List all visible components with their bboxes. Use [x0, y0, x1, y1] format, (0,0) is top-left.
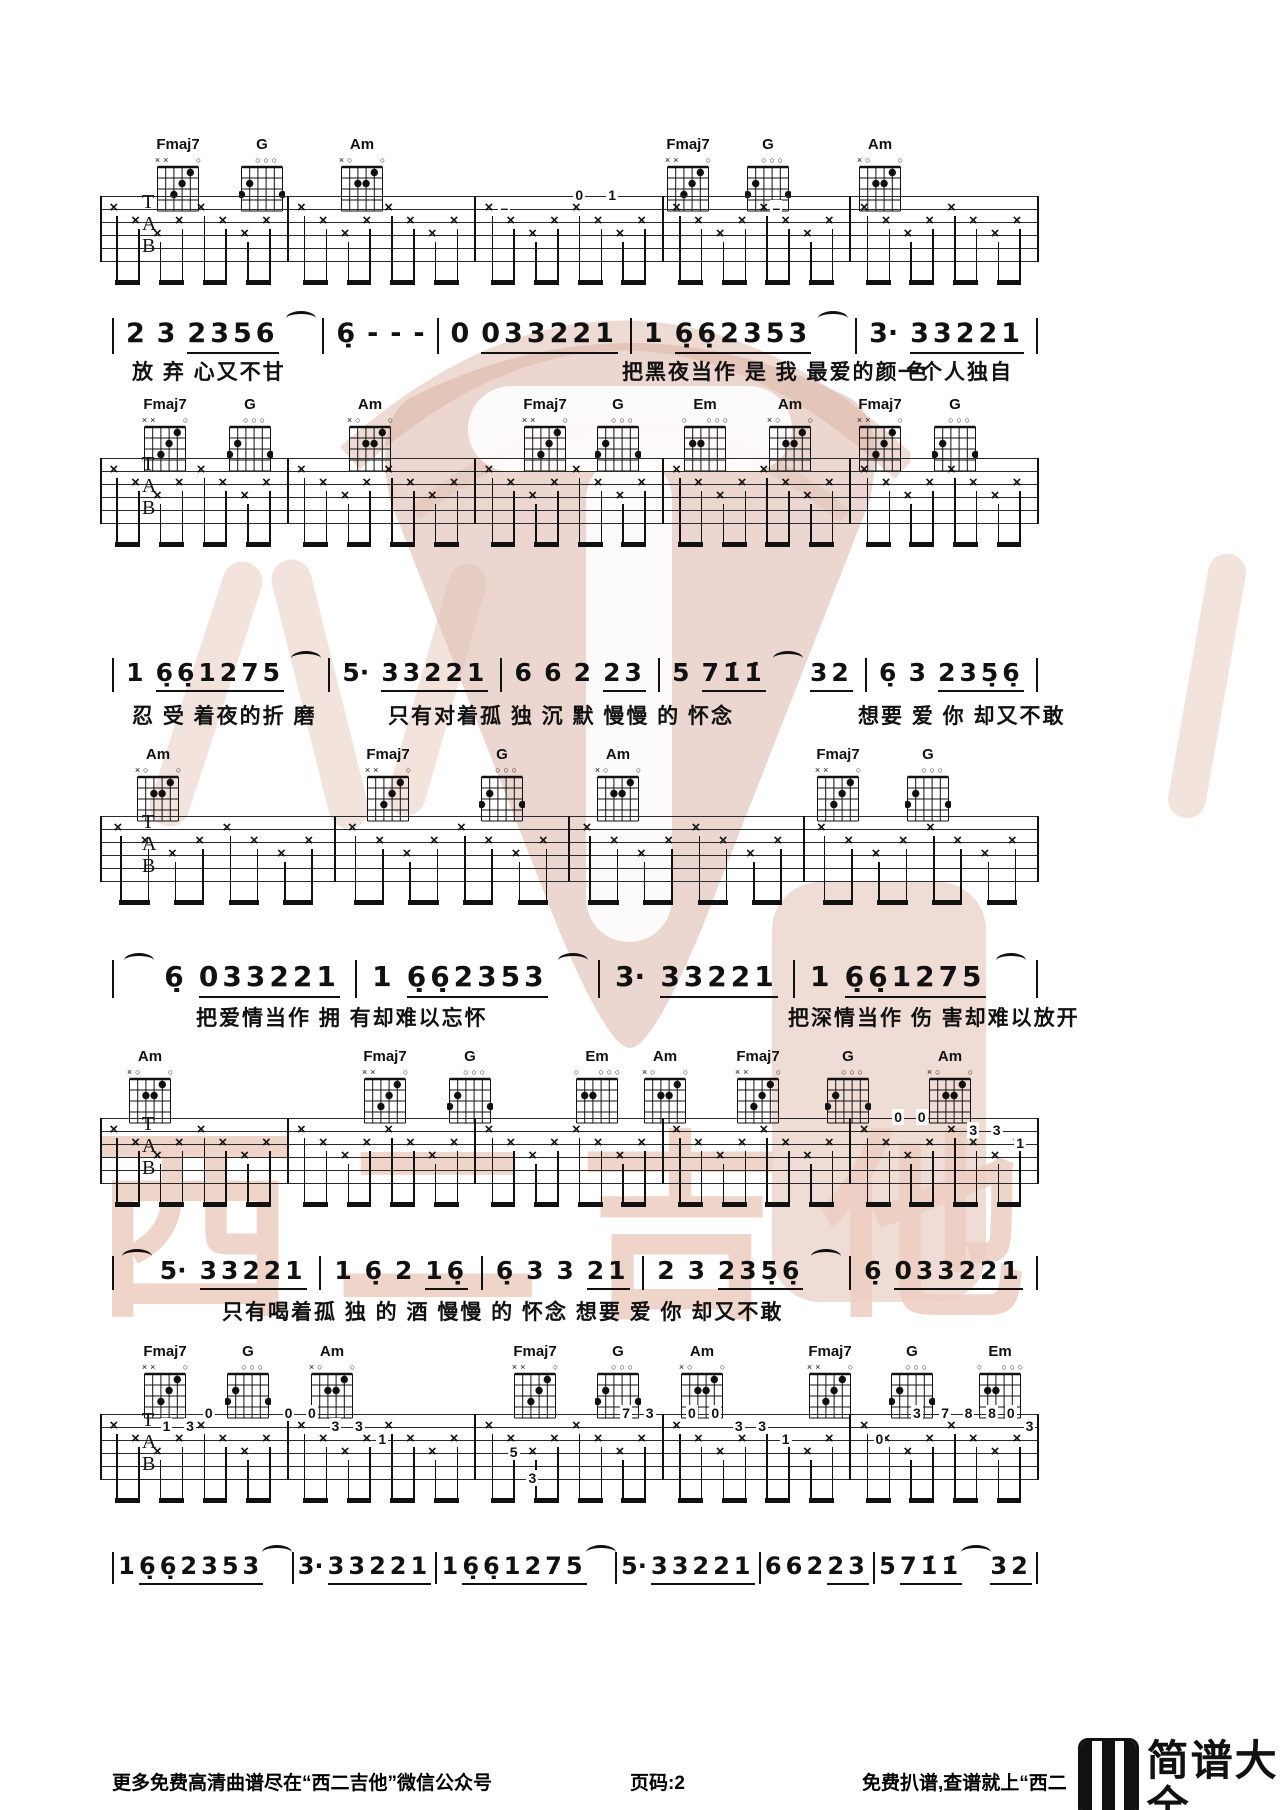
strum-mark: ×: [262, 1134, 271, 1151]
melody-token: 3: [556, 1256, 573, 1285]
beam: [534, 280, 559, 285]
beam: [390, 542, 415, 547]
note-stem: [788, 1447, 790, 1500]
note-stem: [391, 1138, 393, 1204]
chord-name: Am: [124, 1050, 176, 1064]
melody-token: 1: [118, 1552, 135, 1580]
chord-name: Am: [132, 748, 184, 762]
svg-text:×: ×: [735, 1067, 740, 1077]
chord-name: Fmaj7: [359, 1050, 411, 1064]
svg-text:○: ○: [183, 415, 188, 425]
strum-mark: ×: [362, 1134, 371, 1151]
chord-name: G: [236, 138, 288, 152]
svg-text:○: ○: [611, 1362, 616, 1372]
melody-barline: [112, 658, 114, 692]
strum-mark: ×: [485, 461, 494, 478]
svg-text:○: ○: [706, 415, 711, 425]
svg-text:○: ○: [241, 1362, 246, 1372]
svg-text:○: ○: [495, 765, 500, 775]
beam: [115, 280, 140, 285]
melody-token: 33221: [381, 658, 488, 692]
beam: [303, 1498, 328, 1503]
note-stem: [284, 862, 286, 902]
beam: [621, 1498, 646, 1503]
note-stem: [910, 1164, 912, 1204]
strum-mark: ×: [539, 832, 548, 849]
note-stem: [435, 1164, 437, 1204]
strum-mark: ×: [947, 1121, 956, 1138]
melody-token: 5·: [342, 658, 369, 687]
melody-barline: [481, 1256, 483, 1290]
beam: [390, 1498, 415, 1503]
fret-number: 5: [508, 1444, 520, 1460]
svg-text:○: ○: [778, 155, 783, 165]
note-stem: [138, 491, 140, 544]
melody-token: 5·: [621, 1552, 647, 1580]
barline: [474, 196, 476, 262]
note-stem: [622, 1460, 624, 1500]
melody-token: 6: [544, 658, 561, 687]
svg-text:○: ○: [317, 1362, 322, 1372]
strum-mark: ×: [594, 1134, 603, 1151]
melody-barline: [865, 658, 867, 692]
strum-mark: ×: [825, 474, 834, 491]
strum-mark: ×: [903, 1147, 912, 1164]
svg-text:○: ○: [598, 1067, 603, 1077]
strum-mark: ×: [572, 1121, 581, 1138]
lyric-segment: 把黑夜当作 是 我 最爱的颜 色: [622, 356, 929, 386]
strum-mark: ×: [528, 1147, 537, 1164]
chord-name: G: [476, 748, 528, 762]
strum-mark: ×: [402, 845, 411, 862]
melody-token: 235̣6̣: [718, 1256, 804, 1290]
note-stem: [116, 1138, 118, 1204]
svg-text:○: ○: [176, 765, 181, 775]
note-stem: [369, 1151, 371, 1204]
note-stem: [960, 849, 962, 902]
note-stem: [726, 849, 728, 902]
strum-mark: ×: [903, 1443, 912, 1460]
fret-number: 3: [911, 1405, 923, 1421]
fret-number: 3: [330, 1418, 342, 1434]
melody-token: 3: [157, 318, 176, 349]
beam: [809, 1498, 834, 1503]
strum-mark: ×: [1012, 1430, 1021, 1447]
fret-number: 1: [606, 187, 618, 203]
strum-mark: ×: [277, 845, 286, 862]
svg-text:×: ×: [642, 1067, 647, 1077]
tab-clef: T A B: [142, 1409, 156, 1475]
note-stem: [413, 491, 415, 544]
note-stem: [745, 1447, 747, 1500]
beam: [246, 1498, 271, 1503]
barline: [662, 458, 664, 524]
lyric-segment: 只有对着孤 独 沉 默 慢慢 的 怀念: [388, 700, 734, 730]
chord-diagram-g: G○○○: [822, 1050, 874, 1124]
svg-text:×: ×: [815, 765, 820, 775]
fret-number: 1: [161, 1418, 173, 1434]
note-stem: [753, 862, 755, 902]
strum-mark: ×: [903, 487, 912, 504]
note-stem: [116, 216, 118, 282]
note-stem: [910, 504, 912, 544]
staff-start-barline: [100, 458, 102, 524]
note-stem: [889, 1151, 891, 1204]
melody-barline: [849, 1256, 851, 1290]
svg-text:○: ○: [682, 415, 687, 425]
strum-mark: ×: [781, 474, 790, 491]
beam: [866, 280, 891, 285]
strum-mark: ×: [615, 225, 624, 242]
beam: [722, 1202, 747, 1207]
barline: [568, 816, 570, 882]
chord-name: Am: [764, 398, 816, 412]
strum-mark: ×: [484, 832, 493, 849]
melody-token: 3: [526, 1256, 543, 1285]
svg-text:×: ×: [520, 1362, 525, 1372]
melody-token: 6̣6̣2353: [407, 960, 548, 998]
svg-text:○: ○: [948, 415, 953, 425]
svg-text:×: ×: [815, 1362, 820, 1372]
strum-mark: ×: [692, 819, 701, 836]
note-stem: [492, 1138, 494, 1204]
svg-text:○: ○: [347, 155, 352, 165]
strum-mark: ×: [582, 819, 591, 836]
tie-arc: [291, 651, 321, 666]
note-stem: [878, 862, 880, 902]
melody-barline: [1036, 1552, 1038, 1584]
tie-arc: [996, 953, 1026, 968]
svg-text:×: ×: [512, 1362, 517, 1372]
svg-text:×: ×: [767, 415, 772, 425]
strum-mark: ×: [925, 212, 934, 229]
melody-token: 6̣: [336, 318, 355, 349]
melody-token: 33221: [200, 1256, 307, 1290]
note-stem: [998, 242, 1000, 282]
svg-text:○: ○: [938, 765, 943, 775]
strum-mark: ×: [406, 1430, 415, 1447]
strum-mark: ×: [738, 474, 747, 491]
strum-mark: ×: [610, 832, 619, 849]
note-stem: [391, 216, 393, 282]
melody-barline: [793, 960, 795, 998]
strum-mark: ×: [131, 474, 140, 491]
svg-text:×: ×: [365, 765, 370, 775]
melody-barline: [328, 658, 330, 692]
beam: [434, 542, 459, 547]
strum-mark: ×: [947, 199, 956, 216]
note-stem: [230, 836, 232, 902]
note-stem: [148, 849, 150, 902]
melody-token: 33221: [328, 1552, 432, 1585]
note-stem: [557, 229, 559, 282]
strum-mark: ×: [297, 1417, 306, 1434]
svg-text:○: ○: [260, 415, 265, 425]
lyric-segment: 放 弃 心又不甘: [132, 356, 286, 386]
note-stem: [457, 1151, 459, 1204]
fret-number: 3: [353, 1418, 365, 1434]
melody-token: 6: [786, 1552, 803, 1580]
note-stem: [269, 229, 271, 282]
beam: [621, 1202, 646, 1207]
beam: [491, 1498, 516, 1503]
note-stem: [745, 229, 747, 282]
note-stem: [348, 242, 350, 282]
note-stem: [225, 229, 227, 282]
beam: [203, 542, 228, 547]
note-stem: [671, 849, 673, 902]
strum-mark: ×: [572, 1417, 581, 1434]
beam: [174, 900, 204, 905]
note-stem: [1019, 491, 1021, 544]
strum-mark: ×: [319, 212, 328, 229]
melody-token: 6̣: [365, 1256, 382, 1285]
svg-text:○: ○: [956, 415, 961, 425]
note-stem: [311, 849, 313, 902]
svg-text:○: ○: [471, 1067, 476, 1077]
note-stem: [579, 1138, 581, 1204]
note-stem: [348, 1164, 350, 1204]
note-stem: [932, 229, 934, 282]
strum-mark: ×: [773, 832, 782, 849]
note-stem: [788, 1151, 790, 1204]
svg-text:×: ×: [163, 155, 168, 165]
strum-mark: ×: [991, 487, 1000, 504]
fret-number: 0: [709, 1405, 721, 1421]
lyric-segment: 把深情当作 伤 害却难以放开: [788, 1002, 1080, 1032]
note-stem: [326, 1447, 328, 1500]
barline: [287, 1414, 289, 1480]
note-stem: [810, 242, 812, 282]
note-stem: [723, 504, 725, 544]
note-stem: [204, 478, 206, 544]
melody-token: 2356: [187, 318, 278, 354]
beam: [115, 1498, 140, 1503]
svg-text:×: ×: [530, 415, 535, 425]
barline: [474, 458, 476, 524]
chord-diagram-em: Em○○○○: [571, 1050, 623, 1124]
fret-number: 3: [184, 1418, 196, 1434]
note-stem: [976, 1151, 978, 1204]
melody-token: 5: [879, 1552, 896, 1580]
svg-text:○: ○: [865, 155, 870, 165]
beam: [678, 542, 703, 547]
svg-text:×: ×: [370, 1067, 375, 1077]
beam: [347, 542, 372, 547]
strum-mark: ×: [882, 1134, 891, 1151]
svg-text:○: ○: [403, 1067, 408, 1077]
note-stem: [160, 242, 162, 282]
tie-arc: [122, 1249, 152, 1264]
beam: [491, 542, 516, 547]
strum-mark: ×: [197, 1121, 206, 1138]
melody-token: 5: [672, 658, 689, 687]
melody-barline: [1036, 1256, 1038, 1290]
fret-number: 3: [967, 1122, 979, 1138]
strum-mark: ×: [803, 1443, 812, 1460]
note-stem: [413, 1447, 415, 1500]
svg-text:○: ○: [898, 415, 903, 425]
melody-token: -: [390, 318, 401, 349]
strum-mark: ×: [297, 199, 306, 216]
note-stem: [579, 216, 581, 282]
tie-arc: [586, 1545, 616, 1560]
note-stem: [701, 229, 703, 282]
note-stem: [138, 229, 140, 282]
note-stem: [622, 504, 624, 544]
note-stem: [810, 1460, 812, 1500]
strum-mark: ×: [926, 819, 935, 836]
barline: [803, 816, 805, 882]
strum-mark: ×: [860, 199, 869, 216]
note-stem: [679, 1434, 681, 1500]
melody-token: 21: [587, 1256, 630, 1290]
svg-text:○: ○: [243, 415, 248, 425]
svg-text:○: ○: [1001, 1362, 1006, 1372]
strum-mark: ×: [450, 1134, 459, 1151]
note-stem: [225, 1447, 227, 1500]
beam: [303, 542, 328, 547]
footer-right-text: 免费扒谱,查谱就上“西二: [862, 1768, 1067, 1795]
svg-text:○: ○: [251, 415, 256, 425]
note-stem: [535, 504, 537, 544]
melody-token: 6̣6̣1275: [845, 960, 986, 998]
melody-token: 6: [765, 1552, 782, 1580]
note-stem: [225, 491, 227, 544]
svg-text:○: ○: [650, 1067, 655, 1077]
barline: [1037, 458, 1039, 524]
chord-name: Fmaj7: [509, 1345, 561, 1359]
strum-mark: ×: [384, 461, 393, 478]
note-stem: [1019, 1151, 1021, 1204]
chord-name: Fmaj7: [804, 1345, 856, 1359]
melody-barline: [1036, 318, 1038, 354]
svg-text:×: ×: [823, 765, 828, 775]
chord-diagram-am: Am×○○: [592, 748, 644, 822]
note-stem: [138, 1447, 140, 1500]
svg-text:○: ○: [503, 765, 508, 775]
barline: [1037, 1414, 1039, 1480]
strum-mark: ×: [197, 199, 206, 216]
barline: [849, 1414, 851, 1480]
note-stem: [269, 491, 271, 544]
strum-mark: ×: [825, 1430, 834, 1447]
barline: [474, 1414, 476, 1480]
strum-mark: ×: [969, 474, 978, 491]
strum-mark: ×: [694, 474, 703, 491]
svg-text:○: ○: [355, 415, 360, 425]
svg-text:×: ×: [927, 1067, 932, 1077]
strum-mark: ×: [615, 1443, 624, 1460]
strum-mark: ×: [406, 212, 415, 229]
strum-mark: ×: [969, 212, 978, 229]
melody-barline: [437, 318, 439, 354]
beam: [229, 900, 259, 905]
melody-barline: [630, 318, 632, 354]
melody-token: 23: [603, 658, 646, 692]
note-stem: [269, 1151, 271, 1204]
melody-token: 71̇1̇: [702, 658, 766, 692]
svg-text:○: ○: [977, 1362, 982, 1372]
melody-token: 23: [827, 1552, 868, 1585]
strum-mark: ×: [716, 487, 725, 504]
chord-name: Fmaj7: [519, 398, 571, 412]
strum-mark: ×: [550, 1430, 559, 1447]
strum-mark: ×: [153, 225, 162, 242]
note-stem: [679, 478, 681, 544]
melody-barline: [112, 1256, 114, 1290]
melody-token: 2: [807, 1552, 824, 1580]
beam: [347, 1498, 372, 1503]
note-stem: [413, 229, 415, 282]
strum-mark: ×: [844, 832, 853, 849]
svg-text:○: ○: [968, 1067, 973, 1077]
strum-mark: ×: [664, 832, 673, 849]
strum-mark: ×: [319, 1134, 328, 1151]
note-stem: [304, 478, 306, 544]
note-stem: [832, 229, 834, 282]
melody-barline: [658, 658, 660, 692]
note-stem: [557, 1447, 559, 1500]
tie-arc: [286, 311, 316, 326]
svg-text:○: ○: [480, 1067, 485, 1077]
strum-mark: ×: [925, 1430, 934, 1447]
beam: [722, 542, 747, 547]
strum-mark: ×: [428, 1443, 437, 1460]
lyric-segment: 只有喝着孤 独 的 酒 慢慢 的 怀念 想要 爱 你 却又不敢: [222, 1296, 783, 1326]
strum-mark: ×: [450, 1430, 459, 1447]
svg-text:○: ○: [350, 1362, 355, 1372]
svg-text:○: ○: [619, 1362, 624, 1372]
note-stem: [247, 504, 249, 544]
lyric-segment: 一个人独自: [898, 356, 1013, 386]
melody-token: 3·: [869, 318, 898, 349]
melody-barline: [855, 318, 857, 354]
fret-number: 8: [963, 1405, 975, 1421]
svg-text:○: ○: [258, 1362, 263, 1372]
brand-block: 简谱大全 jianpudq.com: [1078, 1738, 1280, 1810]
svg-text:×: ×: [373, 765, 378, 775]
fret-number: 3: [1024, 1418, 1036, 1434]
fret-number: –: [770, 200, 782, 216]
chord-diagram-g: G○○○: [902, 748, 954, 822]
strum-mark: ×: [485, 199, 494, 216]
beam: [463, 900, 493, 905]
strum-mark: ×: [528, 487, 537, 504]
chord-diagram-g: G○○○: [222, 1345, 274, 1419]
beam: [518, 900, 548, 905]
strum-mark: ×: [716, 1443, 725, 1460]
chord-name: G: [822, 1050, 874, 1064]
fret-number: –: [498, 200, 510, 216]
strum-mark: ×: [672, 1121, 681, 1138]
strum-mark: ×: [319, 1430, 328, 1447]
note-stem: [954, 1138, 956, 1204]
melody-token: 6̣6̣2353: [139, 1552, 263, 1585]
strum-mark: ×: [297, 461, 306, 478]
chord-diagram-g: G○○○: [592, 1345, 644, 1419]
melody-token: 1: [334, 1256, 351, 1285]
strum-mark: ×: [450, 212, 459, 229]
svg-text:×: ×: [679, 1362, 684, 1372]
strum-mark: ×: [803, 1147, 812, 1164]
barline: [849, 458, 851, 524]
strum-mark: ×: [694, 1430, 703, 1447]
beam: [115, 1202, 140, 1207]
melody-line-2: 16̣6̣12755·3322166223571̇1̇326̣3235̣6̣: [112, 658, 1038, 692]
note-stem: [247, 1164, 249, 1204]
strum-mark: ×: [637, 474, 646, 491]
